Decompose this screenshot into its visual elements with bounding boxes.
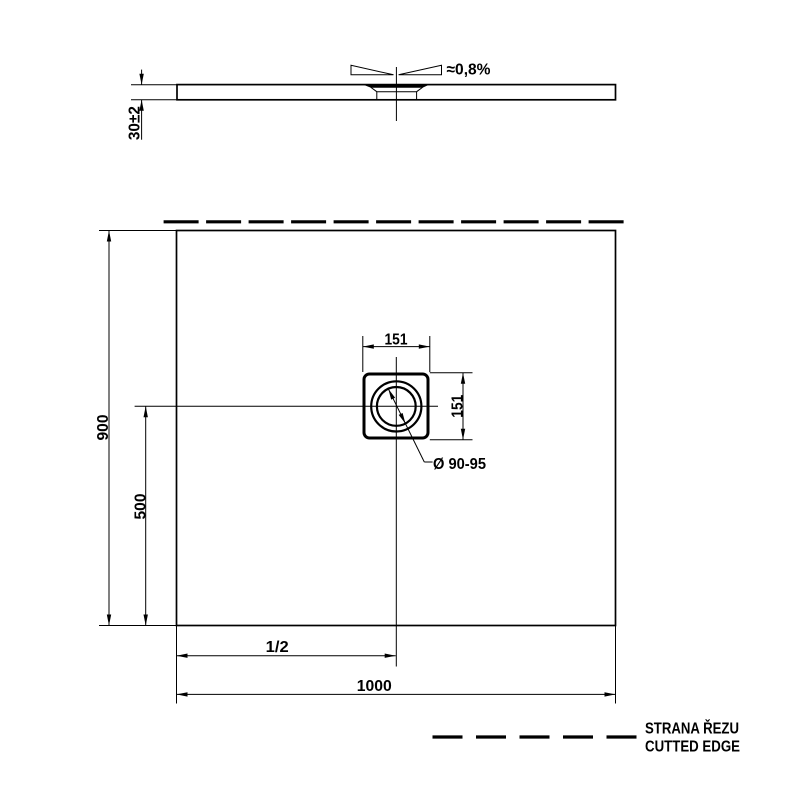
svg-text:≈0,8%: ≈0,8% <box>447 62 491 79</box>
svg-text:30±2: 30±2 <box>127 106 144 140</box>
svg-text:CUTTED EDGE: CUTTED EDGE <box>645 738 740 755</box>
svg-text:151: 151 <box>450 395 467 418</box>
svg-text:500: 500 <box>132 493 149 519</box>
svg-text:1/2: 1/2 <box>266 639 289 656</box>
svg-text:151: 151 <box>385 331 408 348</box>
svg-text:STRANA ŘEZU: STRANA ŘEZU <box>645 719 739 738</box>
svg-text:1000: 1000 <box>357 678 392 695</box>
svg-text:900: 900 <box>95 414 112 440</box>
svg-text:Ø 90-95: Ø 90-95 <box>433 456 486 473</box>
